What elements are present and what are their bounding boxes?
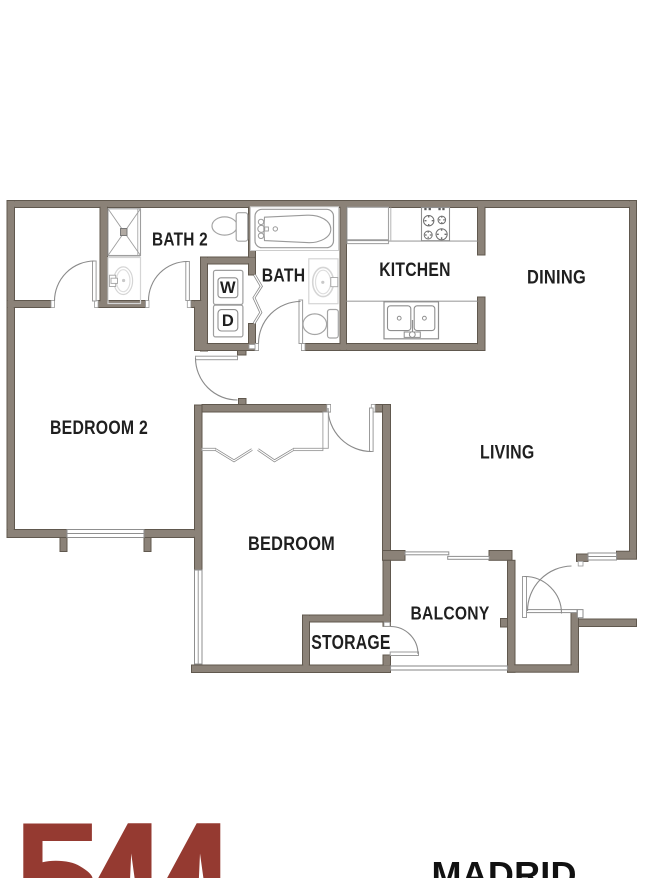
svg-text:LIVING: LIVING	[480, 442, 535, 464]
svg-text:W: W	[220, 279, 236, 297]
svg-text:DINING: DINING	[527, 267, 586, 289]
svg-text:BEDROOM 2: BEDROOM 2	[50, 418, 148, 439]
svg-text:D: D	[222, 312, 234, 330]
svg-text:MADRID: MADRID	[432, 854, 577, 878]
svg-text:KITCHEN: KITCHEN	[379, 259, 451, 281]
svg-text:BALCONY: BALCONY	[411, 603, 490, 623]
svg-text:STORAGE: STORAGE	[311, 631, 391, 654]
svg-text:BEDROOM: BEDROOM	[248, 533, 335, 555]
svg-text:BATH: BATH	[262, 265, 306, 285]
svg-text:BATH 2: BATH 2	[152, 230, 208, 250]
